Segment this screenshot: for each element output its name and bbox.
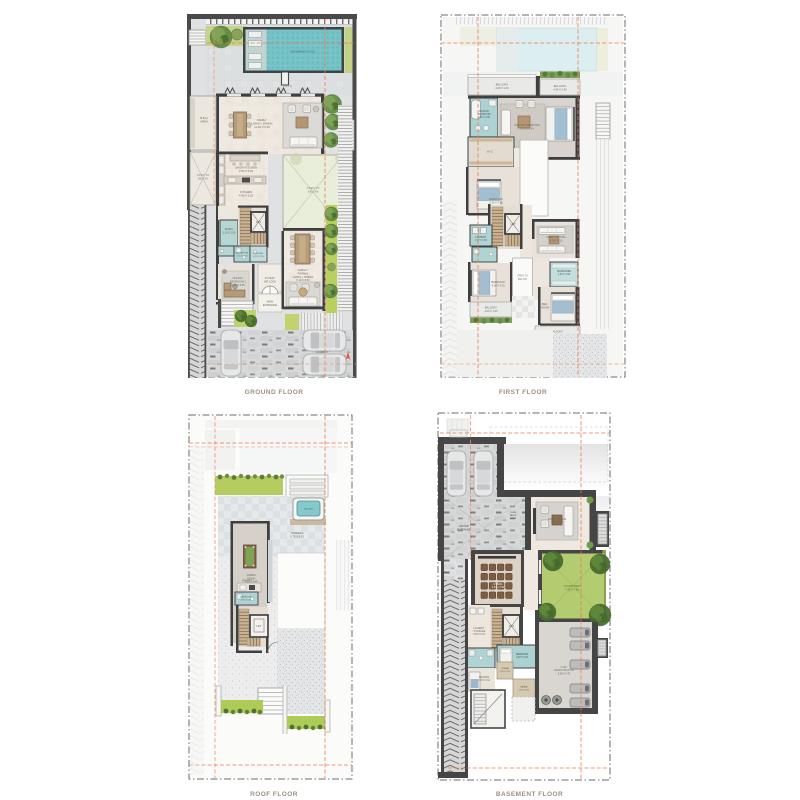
svg-text:3.00 X 2.00: 3.00 X 2.00 (236, 256, 248, 258)
svg-text:POWDER: POWDER (253, 253, 263, 255)
svg-text:BEDROOM 1: BEDROOM 1 (230, 279, 246, 283)
svg-text:3.00 X 4.80: 3.00 X 4.80 (478, 117, 490, 119)
svg-text:ROOM: ROOM (541, 305, 549, 309)
svg-text:BED-: BED- (542, 302, 548, 306)
svg-text:2.90 X 5.20: 2.90 X 5.20 (239, 169, 254, 173)
svg-text:FORMAL: FORMAL (298, 271, 309, 275)
svg-text:JACUZZI: JACUZZI (304, 508, 313, 511)
svg-text:AIR LOCK: AIR LOCK (264, 279, 276, 283)
svg-text:COURTYARD: COURTYARD (564, 584, 581, 588)
svg-text:5.00 X 5.50: 5.00 X 5.50 (492, 586, 505, 589)
svg-text:AREA: AREA (200, 120, 208, 124)
svg-text:LIVING + DINING: LIVING + DINING (293, 275, 314, 279)
svg-text:4.09 X 5.10: 4.09 X 5.10 (473, 634, 485, 636)
svg-text:SWIMMING POOL: SWIMMING POOL (290, 50, 315, 54)
svg-text:BELOW: BELOW (308, 190, 319, 194)
svg-text:5.10 X 8.50: 5.10 X 8.50 (296, 278, 310, 282)
svg-text:1.70 X 2.25: 1.70 X 2.25 (500, 671, 511, 673)
svg-text:DRIVERS: DRIVERS (479, 677, 490, 679)
svg-text:LIFT: LIFT (256, 220, 262, 224)
svg-text:PATIO: PATIO (284, 84, 293, 88)
svg-text:MAIN: MAIN (267, 300, 274, 304)
svg-text:LAUNDRY: LAUNDRY (474, 627, 485, 630)
svg-text:GROUND FLOOR: GROUND FLOOR (245, 389, 304, 396)
svg-text:BASEMENT FLOOR: BASEMENT FLOOR (496, 791, 563, 798)
svg-text:1.70 X 2.20: 1.70 X 2.20 (252, 256, 264, 258)
svg-text:2.97 X 1.50: 2.97 X 1.50 (475, 240, 487, 242)
svg-text:LIFT: LIFT (510, 222, 516, 226)
svg-text:FOYER /: FOYER / (265, 276, 276, 280)
svg-text:W.I.C: W.I.C (487, 151, 493, 154)
svg-text:1.93 X 3.66: 1.93 X 3.66 (558, 273, 571, 276)
svg-text:FIRST FLOOR: FIRST FLOOR (499, 389, 547, 396)
svg-text:2.97 X 3.24: 2.97 X 3.24 (516, 657, 528, 659)
svg-text:BEDROOM: BEDROOM (489, 197, 502, 201)
svg-text:7.35 X 4.50: 7.35 X 4.50 (551, 521, 564, 524)
svg-text:BEDROOM: BEDROOM (516, 654, 528, 656)
svg-text:/ STORAGE: / STORAGE (473, 630, 486, 633)
svg-text:BATHROOM: BATHROOM (236, 252, 249, 255)
svg-text:MASTER: MASTER (479, 110, 489, 113)
svg-text:4.20 X 4.26: 4.20 X 4.26 (489, 200, 503, 204)
svg-text:BELOW: BELOW (518, 278, 528, 281)
svg-text:7.35 X 7.60: 7.35 X 7.60 (565, 588, 579, 592)
svg-text:4.06 X 1.40: 4.06 X 1.40 (495, 86, 509, 90)
svg-text:BALCONY: BALCONY (496, 83, 509, 87)
svg-text:BEDROOM: BEDROOM (491, 280, 504, 284)
svg-text:TERRACE: TERRACE (291, 531, 304, 535)
svg-text:11.94 X 6.00: 11.94 X 6.00 (254, 125, 270, 129)
svg-text:SAUNA: SAUNA (520, 686, 528, 689)
svg-text:LIFT: LIFT (257, 625, 262, 628)
svg-text:TABLE: TABLE (510, 514, 517, 517)
svg-text:BATHROOM: BATHROOM (240, 596, 252, 599)
svg-text:5.75 X 6.15: 5.75 X 6.15 (290, 535, 304, 539)
svg-text:STEAM: STEAM (501, 667, 508, 670)
svg-text:BALCONY: BALCONY (554, 84, 567, 88)
svg-text:CARPORT: CARPORT (316, 350, 329, 354)
svg-text:6.08 X 9.70: 6.08 X 9.70 (558, 672, 571, 675)
svg-text:2.10 X 2.60: 2.10 X 2.60 (223, 231, 236, 234)
svg-text:1.90 X 2.20: 1.90 X 2.20 (241, 599, 252, 601)
svg-text:4.96 X 2.40: 4.96 X 2.40 (553, 87, 567, 91)
svg-text:LIFT: LIFT (509, 624, 515, 628)
svg-text:MOTOR: MOTOR (459, 524, 469, 528)
svg-text:4.50 X 5.10: 4.50 X 5.10 (550, 239, 563, 242)
svg-text:4.60 X 5.20: 4.60 X 5.20 (239, 194, 254, 198)
svg-text:PANTRY: PANTRY (242, 580, 252, 583)
svg-text:ENTRANCE: ENTRANCE (457, 527, 472, 531)
svg-text:BELOW: BELOW (198, 177, 208, 181)
svg-text:4.06 X 1.30: 4.06 X 1.30 (485, 310, 498, 313)
svg-text:4.20 X 4.15: 4.20 X 4.15 (491, 283, 505, 287)
svg-text:4.09 X 4.61: 4.09 X 4.61 (478, 680, 490, 682)
svg-text:2.50 X 2.21: 2.50 X 2.21 (519, 689, 530, 691)
svg-text:ROOF FLOOR: ROOF FLOOR (250, 791, 298, 798)
svg-text:6.10 X 6.24: 6.10 X 6.24 (520, 126, 534, 130)
svg-text:OFFICE /: OFFICE / (233, 276, 244, 280)
svg-text:4.09 X 4.05: 4.09 X 4.05 (231, 283, 245, 287)
svg-text:ENTRANCE: ENTRANCE (263, 303, 278, 307)
svg-text:MASTER BEDROOM: MASTER BEDROOM (515, 123, 540, 127)
svg-text:FAMILY /: FAMILY / (298, 268, 309, 272)
svg-text:LAUNDRY: LAUNDRY (476, 236, 487, 239)
svg-text:AREA: AREA (510, 517, 516, 520)
svg-text:BATHROOM: BATHROOM (477, 113, 490, 116)
svg-text:TURN: TURN (510, 512, 516, 514)
